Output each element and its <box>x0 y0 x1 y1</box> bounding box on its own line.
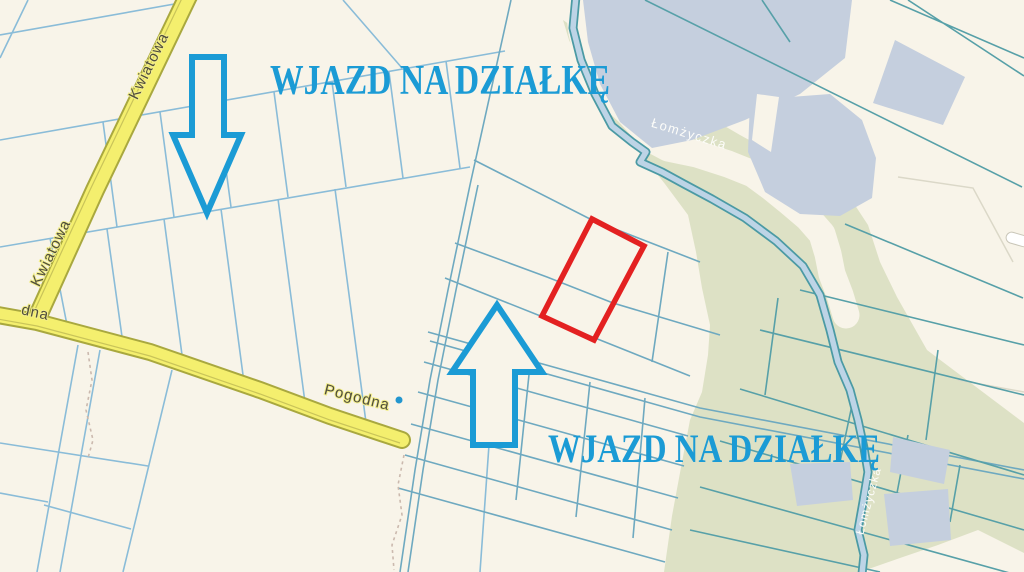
point-marker <box>396 397 403 404</box>
entrance-label-bottom: WJAZD NA DZIAŁKĘ <box>548 426 880 471</box>
entrance-label-top: WJAZD NA DZIAŁKĘ <box>270 58 610 104</box>
pond-bottom-3 <box>884 489 951 546</box>
cadastral-map-canvas[interactable]: Kwiatowa Kwiatowa Pogodna dna Łomżyczka … <box>0 0 1024 572</box>
